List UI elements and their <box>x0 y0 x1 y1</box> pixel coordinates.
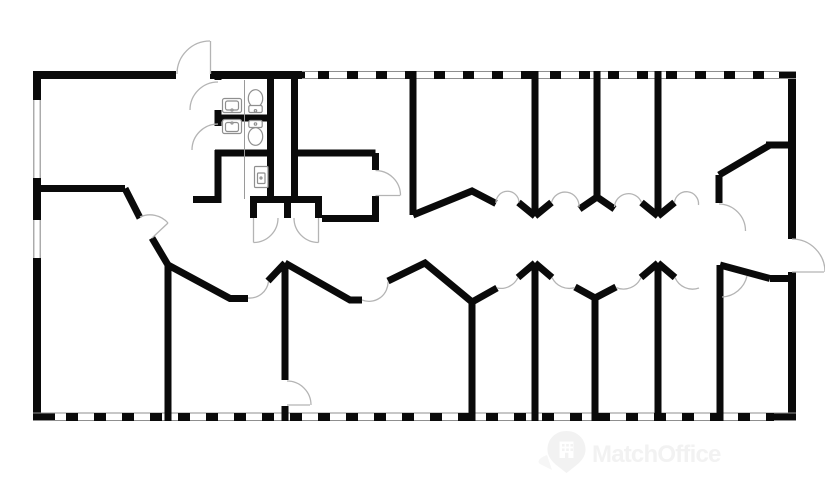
door-swing-arc <box>287 381 311 405</box>
watermark: MatchOffice <box>539 431 721 473</box>
door-swing-arc <box>497 278 518 289</box>
bathroom-fixtures <box>223 90 269 188</box>
diagonal-wall <box>152 238 168 265</box>
wc2-toilet <box>248 121 262 146</box>
door-swing-arc <box>616 278 641 290</box>
bottom-row-partitions <box>37 189 796 422</box>
floor-plan: MatchOffice <box>0 0 825 500</box>
door-swing-arc <box>140 215 168 223</box>
door-leaf <box>152 223 168 238</box>
top-row-partitions <box>413 71 796 216</box>
door-swing-arc <box>675 278 699 290</box>
zigzag-wall <box>285 263 362 300</box>
door-swing-arc <box>248 282 269 299</box>
chamfer-wall-bottom-right <box>720 265 796 279</box>
vestibule-walls <box>250 199 322 218</box>
wc1-washbasin <box>223 99 242 113</box>
door-swing-arc <box>496 191 519 203</box>
window-band-top <box>302 72 796 79</box>
zigzag-wall <box>413 191 496 215</box>
bathroom-block-walls <box>193 71 295 203</box>
small-office-walls <box>294 153 379 222</box>
water-heater <box>255 167 269 188</box>
bottom-left-corner-block <box>33 413 55 421</box>
building-glyph <box>560 442 574 459</box>
door-swing-arc <box>792 239 825 272</box>
door-swing-arc <box>552 192 580 207</box>
brand-name: MatchOffice <box>592 441 721 468</box>
bottom-right-corner-block <box>774 413 796 421</box>
door-swing-arc <box>254 218 279 243</box>
door-swing-arc <box>190 82 218 110</box>
door-leaf-thick <box>575 287 616 298</box>
floor-plan-page: MatchOffice <box>0 0 825 500</box>
door-swing-arc <box>192 124 218 150</box>
left-room-wall <box>37 189 140 219</box>
zigzag-wall <box>168 265 248 299</box>
wc1-toilet <box>248 90 262 113</box>
window-left-lower <box>34 220 40 258</box>
chamfer-wall-top-right <box>719 145 796 175</box>
interior-walls <box>37 71 796 421</box>
window-left-upper <box>34 100 40 178</box>
door-leaf-thick <box>580 197 615 209</box>
wc2-washbasin <box>223 120 242 134</box>
door-swing-arc <box>615 194 642 207</box>
door-swing-arc <box>362 282 388 302</box>
door-swing-arc <box>177 41 210 74</box>
door-swing-arc <box>675 192 699 205</box>
window-band-bottom <box>33 413 796 421</box>
brand-pin-icon <box>539 431 586 473</box>
door-swing-arc <box>294 218 319 243</box>
top-right-corner-block <box>779 71 796 79</box>
door-swing-arc <box>552 278 575 289</box>
zigzag-wall <box>388 263 497 302</box>
door-swing-arc <box>719 204 746 231</box>
door-swing-arc <box>722 276 747 297</box>
door-swing-arc <box>376 170 401 195</box>
